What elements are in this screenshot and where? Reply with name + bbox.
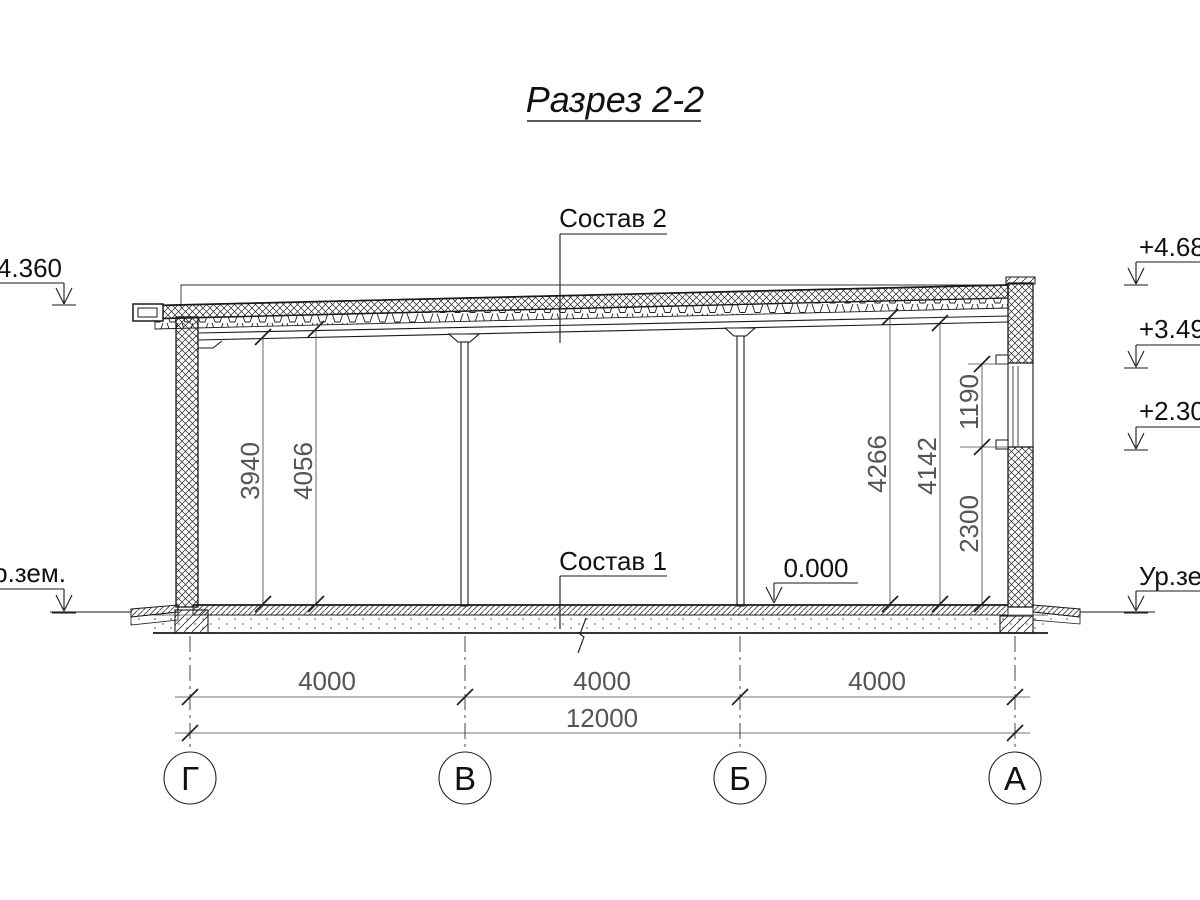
column-axis-v — [449, 334, 479, 606]
axis-label: В — [454, 760, 476, 797]
elevation-mark-ground-left: Ур.зем. — [0, 558, 76, 613]
dim-4142: 4142 — [912, 315, 948, 612]
elevation-label: +4.360 — [0, 253, 62, 283]
elevation-mark-window-sill: +2.30 — [1124, 396, 1200, 450]
dim-label: 4056 — [288, 442, 318, 500]
dim-label: 4142 — [912, 437, 942, 495]
left-wall — [176, 317, 198, 607]
roof-assembly — [133, 285, 1008, 348]
axis-label: А — [1004, 760, 1026, 797]
dim-4266: 4266 — [862, 309, 898, 612]
right-wall-lower — [1008, 447, 1033, 607]
elevation-mark-left-roof: +4.360 — [0, 253, 76, 305]
axis-bubble-b: Б — [714, 752, 766, 804]
right-wall-parapet — [1008, 283, 1033, 363]
axis-label: Б — [729, 760, 751, 797]
window-sill-block — [996, 440, 1008, 449]
dim-label: 2300 — [954, 495, 984, 553]
drawing-title: Разрез 2-2 — [526, 79, 704, 121]
elevation-label: 0.000 — [783, 553, 848, 583]
elevation-mark-right-parapet: +4.68 — [1124, 232, 1200, 285]
page-title: Разрез 2-2 — [526, 79, 704, 120]
dim-label: 4000 — [848, 666, 906, 696]
callout-roof-composition: Состав 2 — [559, 203, 667, 343]
elevation-mark-window-head: +3.49 — [1124, 314, 1200, 368]
callout-label: Состав 2 — [559, 203, 667, 233]
elevation-mark-ground-right: Ур.зем. — [1124, 561, 1200, 613]
elevation-label: +4.68 — [1139, 232, 1200, 262]
drawing-sheet: 3940 4056 4266 4142 1190 — [0, 0, 1200, 900]
bottom-dimensions: 4000 4000 4000 12000 Г В Б А — [164, 636, 1041, 804]
dimension-row-spans: 4000 4000 4000 — [175, 666, 1030, 705]
dim-label: 4000 — [573, 666, 631, 696]
dim-label: 12000 — [566, 703, 638, 733]
foundation-right — [1000, 616, 1033, 633]
section-drawing: 3940 4056 4266 4142 1190 — [0, 0, 1200, 900]
dim-label: 4266 — [862, 435, 892, 493]
right-wall — [996, 277, 1035, 607]
window-head-block — [996, 355, 1008, 364]
foundation-left — [175, 610, 208, 633]
floor-slab — [153, 605, 1048, 653]
dim-label: 4000 — [298, 666, 356, 696]
dim-4056: 4056 — [288, 321, 324, 612]
elevation-label: +3.49 — [1139, 314, 1200, 344]
axis-bubble-g: Г — [164, 752, 216, 804]
dim-label: 1190 — [954, 374, 984, 430]
floor-topping-hatch — [193, 605, 1008, 615]
wall-top-bracket — [198, 341, 222, 348]
floor-concrete-base — [153, 615, 1048, 633]
axis-bubble-v: В — [439, 752, 491, 804]
dimension-row-total: 12000 — [175, 703, 1030, 741]
dim-1190-2300: 1190 2300 — [954, 356, 1008, 612]
axis-label: Г — [181, 760, 199, 797]
elevation-mark-floor-zero: 0.000 — [766, 553, 858, 603]
dim-label: 3940 — [235, 442, 265, 500]
elevation-label: Ур.зем. — [0, 558, 66, 588]
elevation-label: Ур.зем. — [1139, 561, 1200, 591]
column-axis-b — [725, 328, 755, 606]
axis-bubble-a: А — [989, 752, 1041, 804]
window — [996, 355, 1033, 449]
dim-3940: 3940 — [235, 329, 271, 612]
elevation-label: +2.30 — [1139, 396, 1200, 426]
callout-label: Состав 1 — [559, 546, 667, 576]
